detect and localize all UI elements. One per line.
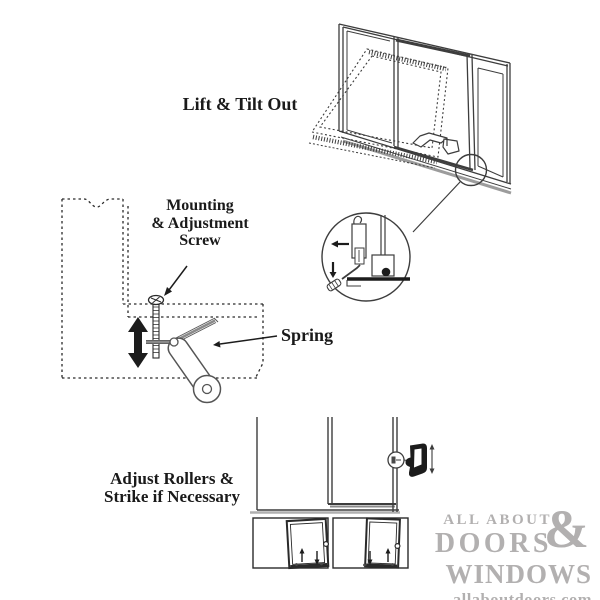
tilted-panel-dashed-outline [309, 49, 448, 168]
adjustment-screw-icon [149, 296, 164, 359]
roller-wheel-icon [382, 268, 391, 277]
mounting-arrow [164, 266, 187, 296]
spring-arrow [213, 336, 277, 348]
tilt-adjust-diagram-left [253, 518, 328, 568]
lift-tilt-label: Lift & Tilt Out [160, 94, 320, 115]
window-perspective-diagram [309, 24, 511, 232]
watermark: & ALL ABOUT DOORS WINDOWS allaboutdoors.… [425, 504, 592, 600]
roller-detail-callout [322, 213, 410, 301]
mounting-adjustment-screw-label: Mounting & Adjustment Screw [128, 197, 272, 250]
callout-pointer-line [413, 182, 460, 232]
watermark-url: allaboutdoors.com [425, 592, 592, 600]
instruction-sheet: Lift & Tilt Out Mounting & Adjustment Sc… [0, 0, 600, 600]
strike-plate-icon [405, 444, 427, 477]
watermark-windows: WINDOWS [425, 561, 592, 588]
door-bottom-front-view [250, 417, 435, 513]
up-down-arrow-icon [128, 317, 148, 368]
spring-label: Spring [281, 325, 333, 346]
watermark-ampersand: & [544, 502, 589, 556]
adjust-rollers-strike-label: Adjust Rollers & Strike if Necessary [90, 470, 254, 506]
tilt-adjust-diagram-right [333, 518, 408, 568]
roller-assembly-icon [165, 318, 221, 403]
window-handle-icon [413, 133, 459, 154]
strike-updown-arrow-icon [430, 444, 435, 474]
